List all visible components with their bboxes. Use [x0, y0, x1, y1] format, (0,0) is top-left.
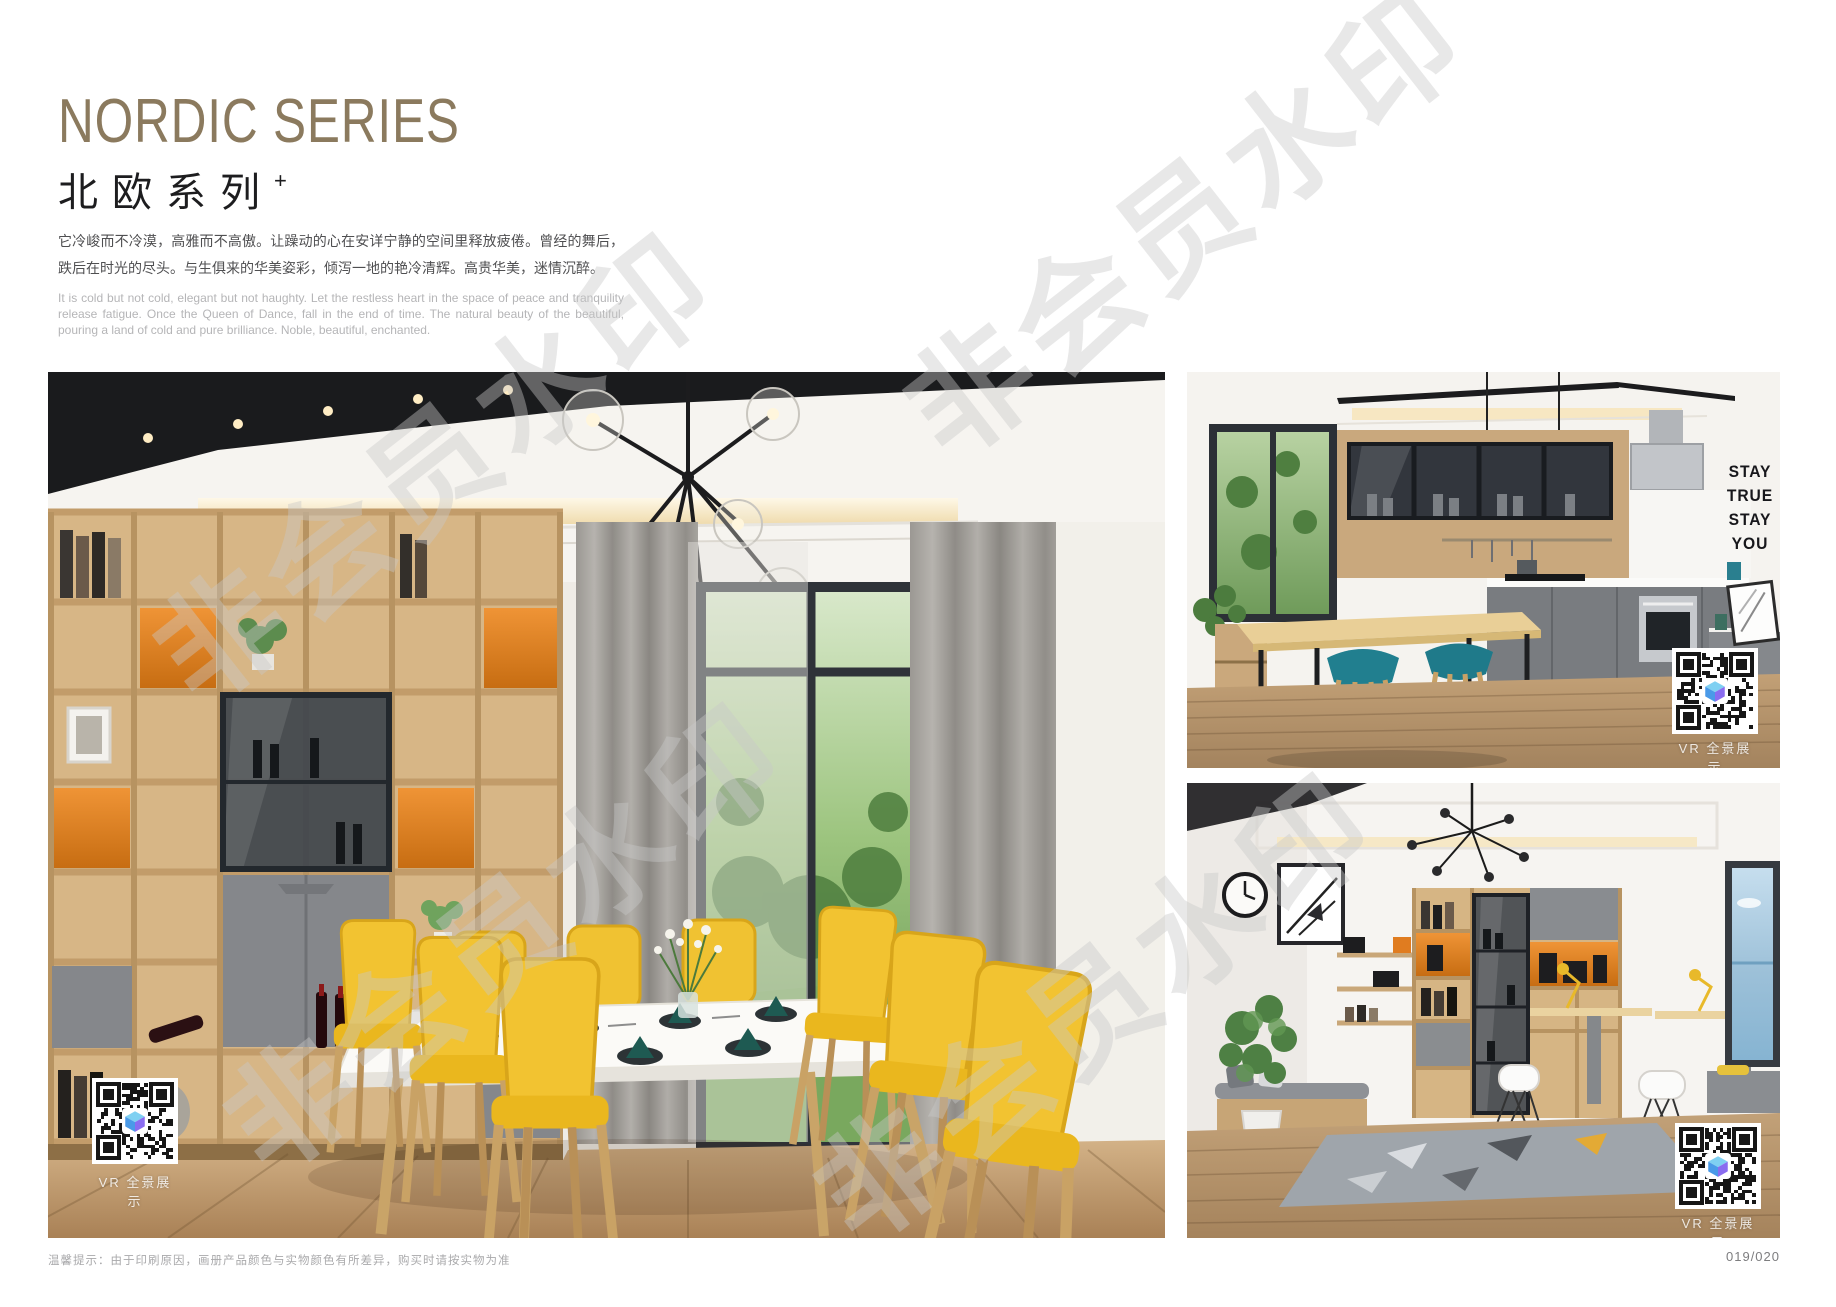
decal-word: STAY — [1718, 460, 1780, 484]
qr-cube-logo-icon — [1702, 678, 1728, 704]
vr-qr-code — [92, 1078, 178, 1164]
study-room-photo: VR 全景展示 — [1187, 783, 1780, 1238]
qr-finder-icon — [96, 1135, 121, 1160]
footer-note: 温馨提示：由于印刷原因，画册产品颜色与实物颜色有所差异，购买时请按实物为准 — [48, 1252, 511, 1268]
page-number: 019/020 — [1680, 1249, 1780, 1264]
description-english: It is cold but not cold, elegant but not… — [58, 290, 624, 338]
description-chinese: 它冷峻而不冷漠，高雅而不高傲。让躁动的心在安详宁静的空间里释放疲倦。曾经的舞后，… — [58, 228, 624, 282]
kitchen-photo: STAY TRUE STAY YOU VR 全景展示 — [1187, 372, 1780, 768]
qr-finder-icon — [96, 1082, 121, 1107]
vr-qr-code — [1672, 648, 1758, 734]
dining-room-photo: VR 全景展示 — [48, 372, 1165, 1238]
vr-panorama-label: VR 全景展示 — [1672, 738, 1758, 768]
page-subtitle: 北欧系列+ — [58, 160, 287, 218]
qr-cube-logo-icon — [122, 1108, 148, 1134]
subtitle-text: 北欧系列 — [58, 171, 274, 215]
qr-finder-icon — [1676, 652, 1701, 677]
decal-word: STAY — [1718, 508, 1780, 532]
wall-decal-stay-true-stay-you: STAY TRUE STAY YOU — [1718, 460, 1780, 556]
vr-qr-code — [1675, 1123, 1761, 1209]
qr-finder-icon — [149, 1082, 174, 1107]
qr-finder-icon — [1676, 705, 1701, 730]
catalog-page: 非会员水印 非会员水印 非会员水印 非会员水印 NORDIC SERIES 北欧… — [0, 0, 1836, 1307]
vr-panorama-label: VR 全景展示 — [1675, 1213, 1761, 1238]
qr-finder-icon — [1679, 1127, 1704, 1152]
qr-cube-logo-icon — [1705, 1153, 1731, 1179]
vr-panorama-label: VR 全景展示 — [92, 1172, 178, 1210]
decal-word: TRUE — [1718, 484, 1780, 508]
qr-finder-icon — [1729, 652, 1754, 677]
decal-word: YOU — [1718, 532, 1780, 556]
qr-finder-icon — [1679, 1180, 1704, 1205]
page-title: NORDIC SERIES — [58, 86, 460, 157]
dining-room-scene — [48, 372, 1165, 1238]
qr-finder-icon — [1732, 1127, 1757, 1152]
subtitle-plus: + — [274, 168, 287, 193]
